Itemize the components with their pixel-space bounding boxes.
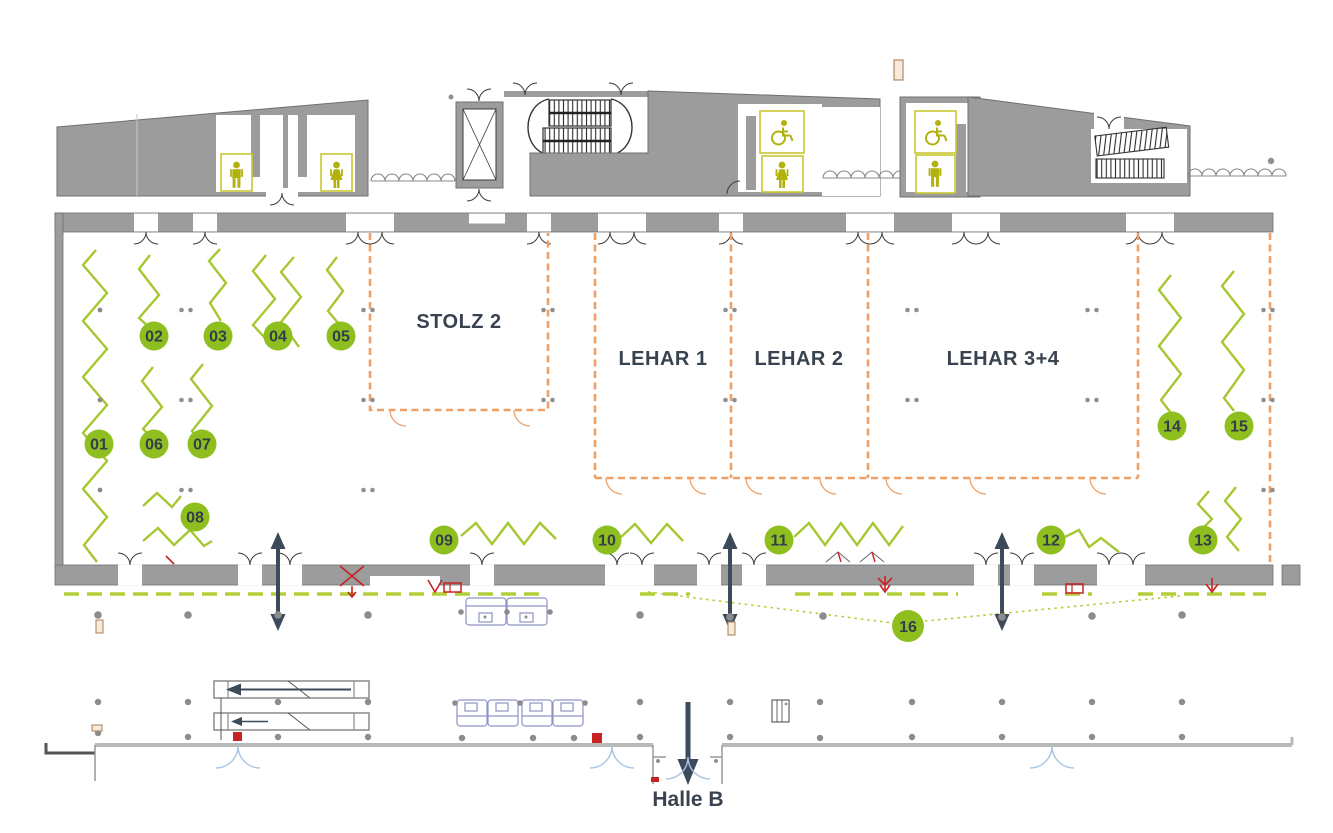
cloakroom-rail-icon <box>1272 169 1286 176</box>
lehar-partitions[interactable] <box>595 233 1270 565</box>
zigzag-13a <box>1198 491 1212 530</box>
marker-13-label: 13 <box>1194 533 1212 550</box>
partition-door-arcs <box>390 410 1106 494</box>
marker-10[interactable]: 10 <box>593 526 622 555</box>
zigzag-09 <box>461 523 556 544</box>
sign-post <box>894 60 903 80</box>
marker-15-label: 15 <box>1230 419 1248 436</box>
zigzag-06 <box>142 367 162 438</box>
marker-16[interactable]: 16 <box>892 610 924 642</box>
stair-curve <box>611 99 632 155</box>
marker-15[interactable]: 15 <box>1225 412 1254 441</box>
sign-post <box>728 622 735 635</box>
column-dot <box>1268 158 1274 164</box>
zigzag-stand-rows <box>83 249 1244 562</box>
marker-08[interactable]: 08 <box>181 503 210 532</box>
marker-11[interactable]: 11 <box>765 526 794 555</box>
marker-02[interactable]: 02 <box>140 322 169 351</box>
zigzag-10 <box>621 524 683 543</box>
marker-12-label: 12 <box>1042 533 1060 550</box>
wc-accessible-block-a <box>727 104 822 194</box>
marker-05[interactable]: 05 <box>327 322 356 351</box>
hall-bottom-wall <box>55 565 1273 585</box>
door-blue-icon <box>1030 746 1074 768</box>
wall-stub <box>746 116 756 190</box>
column-row-737 <box>95 730 1185 741</box>
roof-vent-icons <box>826 552 884 562</box>
wall-stub <box>956 124 966 192</box>
marker-01[interactable]: 01 <box>85 430 114 459</box>
main-hall-walls <box>55 213 1300 586</box>
zigzag-13b <box>1225 487 1241 551</box>
lower-concourse <box>46 598 1292 784</box>
marker-06[interactable]: 06 <box>140 430 169 459</box>
room-lehar1-label: LEHAR 1 <box>618 348 707 370</box>
marker-01-label: 01 <box>90 437 108 454</box>
zigzag-02 <box>139 255 159 328</box>
room-lehar34-label: LEHAR 3+4 <box>947 348 1060 370</box>
marker-11-label: 11 <box>771 533 788 550</box>
zigzag-01 <box>83 250 107 562</box>
marker-06-label: 06 <box>145 437 163 454</box>
exit-tick-icon <box>166 556 174 564</box>
marker-14[interactable]: 14 <box>1158 412 1187 441</box>
marker-07-label: 07 <box>193 437 211 454</box>
upper-foyer <box>57 60 1286 205</box>
marker-16-label: 16 <box>899 619 917 636</box>
column-singles <box>98 308 103 493</box>
stairs-icon <box>1096 159 1164 178</box>
column-row-702 <box>95 699 1185 705</box>
escalator-2 <box>214 713 369 730</box>
escalator-1 <box>214 681 369 698</box>
partition-rooms <box>370 233 1270 565</box>
marker-09[interactable]: 09 <box>430 526 459 555</box>
door-blue-icon <box>216 746 260 768</box>
zigzag-14 <box>1159 275 1181 413</box>
cart-icon <box>772 700 789 722</box>
sign-post <box>92 725 102 731</box>
marker-04-label: 04 <box>269 329 287 346</box>
marker-03-label: 03 <box>209 329 227 346</box>
marker-14-label: 14 <box>1163 419 1181 436</box>
foyer-gap <box>822 107 880 196</box>
hall-top-wall <box>55 213 1273 232</box>
column-dot <box>449 95 454 100</box>
marker-12[interactable]: 12 <box>1037 526 1066 555</box>
cloakroom-rail-icon <box>371 174 455 181</box>
fire-extinguisher-icon <box>592 733 602 743</box>
floor-plan-svg: STOLZ 2 LEHAR 1 LEHAR 2 LEHAR 3+4 <box>0 0 1333 833</box>
bottom-wall-doors <box>118 553 1145 565</box>
hall-left-wall <box>55 213 63 570</box>
marker-10-label: 10 <box>598 533 616 550</box>
zigzag-11 <box>794 523 903 545</box>
sign-post <box>96 620 103 633</box>
wc-female-sign <box>321 154 352 191</box>
room-lehar2-label: LEHAR 2 <box>754 348 843 370</box>
elevator <box>456 89 503 201</box>
door-blue-icon <box>590 746 634 768</box>
zigzag-08b <box>143 528 212 546</box>
marker-09-label: 09 <box>435 533 453 550</box>
zigzag-12 <box>1065 530 1119 552</box>
marker-05-label: 05 <box>332 329 350 346</box>
floor-plan-page: STOLZ 2 LEHAR 1 LEHAR 2 LEHAR 3+4 <box>0 0 1333 833</box>
marker-03[interactable]: 03 <box>204 322 233 351</box>
zigzag-03 <box>209 249 226 321</box>
column-grid <box>94 308 1275 742</box>
marker-13[interactable]: 13 <box>1189 526 1218 555</box>
marker-04[interactable]: 04 <box>264 322 293 351</box>
marker-07[interactable]: 07 <box>188 430 217 459</box>
cloakroom-rail-icon <box>1188 169 1272 176</box>
column-row-615 <box>94 611 1186 621</box>
double-door-icon <box>467 189 491 201</box>
halle-b-label: Halle B <box>652 788 723 811</box>
zigzag-05 <box>327 257 343 323</box>
zigzag-08a <box>143 493 181 507</box>
marker-02-label: 02 <box>145 329 163 346</box>
zigzag-15 <box>1222 271 1244 411</box>
wall-stub <box>298 115 307 177</box>
fire-extinguisher-icon <box>233 732 242 741</box>
top-wall-doors <box>134 232 1174 244</box>
marker-08-label: 08 <box>186 510 204 527</box>
room-stolz2-label: STOLZ 2 <box>416 311 501 333</box>
double-door-icon <box>467 89 491 101</box>
exit-marker-icon <box>651 777 659 782</box>
wall-corner-stub <box>46 743 95 753</box>
wall-stub <box>1282 565 1300 585</box>
wc-male-sign <box>221 154 252 191</box>
main-staircase <box>504 83 648 155</box>
